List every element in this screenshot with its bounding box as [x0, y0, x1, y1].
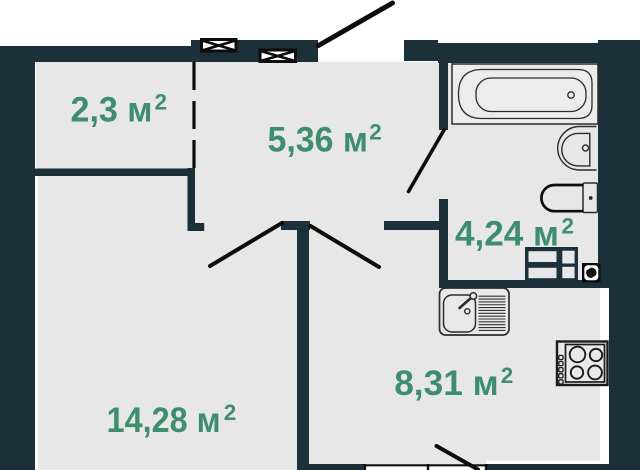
svg-text:8,31 м: 8,31 м	[394, 363, 499, 403]
svg-text:5,36 м: 5,36 м	[268, 120, 369, 160]
svg-text:2,3 м: 2,3 м	[71, 89, 153, 129]
svg-text:2: 2	[562, 214, 575, 239]
svg-text:2: 2	[369, 120, 382, 145]
svg-text:2: 2	[155, 89, 168, 114]
svg-text:2: 2	[501, 363, 514, 388]
svg-text:14,28 м: 14,28 м	[107, 400, 221, 440]
svg-text:2: 2	[224, 400, 237, 425]
svg-text:4,24 м: 4,24 м	[455, 214, 559, 254]
